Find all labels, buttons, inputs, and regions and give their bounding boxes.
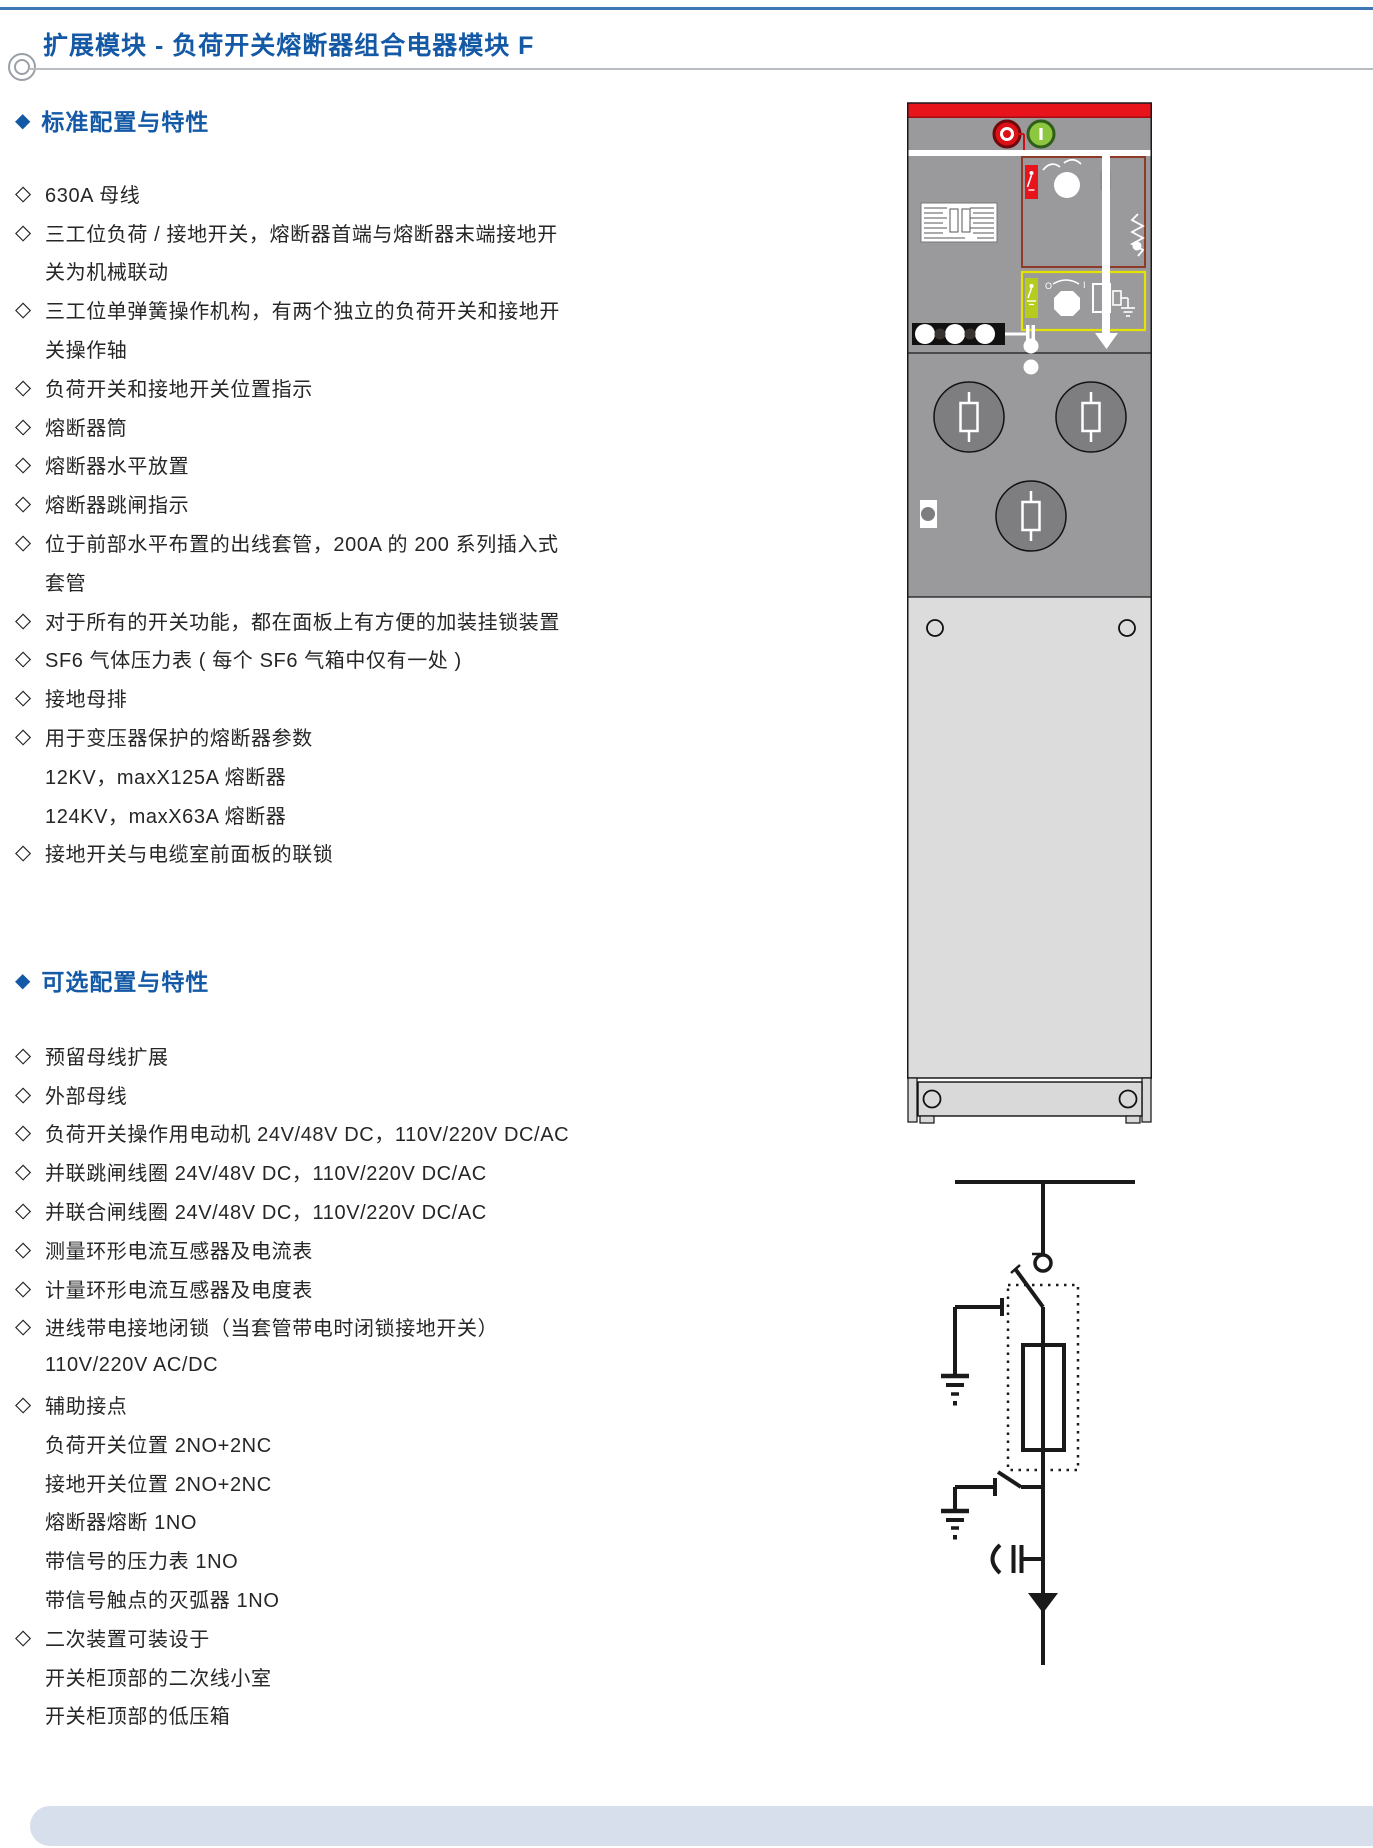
item-diamond-icon: ◇ — [15, 1314, 45, 1339]
item-diamond-icon: ◇ — [15, 1043, 45, 1068]
cabinet-base — [908, 1078, 1151, 1123]
list-item-line: ◇负荷开关操作用电动机 24V/48V DC，110V/220V DC/AC — [15, 1114, 715, 1153]
item-diamond-icon: ◇ — [15, 452, 45, 477]
list-item-text: 熔断器跳闸指示 — [45, 489, 189, 518]
list-item-line: ◇并联跳闸线圈 24V/48V DC，110V/220V DC/AC — [15, 1152, 715, 1191]
item-diamond-icon: ◇ — [15, 685, 45, 710]
list-item-line: ◇预留母线扩展 — [15, 1036, 715, 1075]
list-item-line: ◇位于前部水平布置的出线套管，200A 的 200 系列插入式 — [15, 523, 715, 562]
viewing-port — [920, 500, 937, 528]
list-item-line: ◇接地开关与电缆室前面板的联锁 — [15, 834, 715, 873]
switchgear-cabinet-illustration: O I — [907, 100, 1153, 1130]
list-item-text: 带信号的压力表 1NO — [45, 1545, 238, 1574]
list-item-text: 用于变压器保护的熔断器参数 — [45, 722, 313, 751]
section-diamond-icon: ◆ — [15, 968, 31, 993]
item-diamond-icon: ◇ — [15, 646, 45, 671]
item-diamond-icon: ◇ — [15, 530, 45, 555]
section-heading-optional: ◆ 可选配置与特性 — [15, 963, 209, 997]
load-switch-blade — [1016, 1270, 1043, 1307]
list-item-text: 630A 母线 — [45, 179, 140, 208]
list-item-text: 关操作轴 — [45, 334, 127, 363]
item-diamond-icon: ◇ — [15, 724, 45, 749]
page-top-accent-line — [0, 7, 1373, 10]
list-item-text: 接地开关位置 2NO+2NC — [45, 1468, 272, 1497]
off-push-button — [994, 121, 1020, 147]
list-item-line: ◇熔断器筒 — [15, 407, 715, 446]
list-item-text: 外部母线 — [45, 1080, 127, 1109]
outgoing-feeder-arrow — [1028, 1593, 1058, 1613]
bushing-strip — [912, 323, 1005, 345]
list-item-line: ◇对于所有的开关功能，都在面板上有方便的加装挂锁装置 — [15, 601, 715, 640]
selector-open-label: O — [1045, 281, 1052, 291]
standard-feature-list: ◇630A 母线◇三工位负荷 / 接地开关，熔断器首端与熔断器末端接地开关为机械… — [15, 174, 715, 872]
isolating-contact-symbol — [1035, 1255, 1051, 1271]
item-diamond-icon: ◇ — [15, 375, 45, 400]
list-item-line: ◇用于变压器保护的熔断器参数 — [15, 717, 715, 756]
list-item-line: ◇测量环形电流互感器及电流表 — [15, 1230, 715, 1269]
section-heading-standard: ◆ 标准配置与特性 — [15, 103, 209, 137]
list-item-text: 熔断器筒 — [45, 412, 127, 441]
operating-shaft-knob — [1054, 172, 1080, 198]
list-item-text: 三工位负荷 / 接地开关，熔断器首端与熔断器末端接地开 — [45, 218, 558, 247]
list-item-line: 12KV，maxX125A 熔断器 — [15, 756, 715, 795]
ring-ornament-icon — [8, 53, 36, 81]
item-diamond-icon: ◇ — [15, 1120, 45, 1145]
list-item-line: ◇辅助接点 — [15, 1385, 715, 1424]
list-item-text: 辅助接点 — [45, 1390, 127, 1419]
list-item-text: 位于前部水平布置的出线套管，200A 的 200 系列插入式 — [45, 528, 559, 557]
switch-position-indicator-red — [1025, 165, 1038, 199]
page-title: 扩展模块 - 负荷开关熔断器组合电器模块 F — [43, 26, 534, 62]
list-item-line: 套管 — [15, 562, 715, 601]
section-heading-label: 可选配置与特性 — [41, 963, 209, 997]
list-item-text: 开关柜顶部的低压箱 — [45, 1700, 230, 1729]
page-footer-band — [30, 1806, 1373, 1846]
mimic-diagram-label — [921, 203, 997, 242]
list-item-line: 关为机械联动 — [15, 252, 715, 291]
list-item-line: 124KV，maxX63A 熔断器 — [15, 795, 715, 834]
list-item-text: 熔断器熔断 1NO — [45, 1506, 197, 1535]
list-item-line: 开关柜顶部的低压箱 — [15, 1696, 715, 1735]
list-item-line: ◇熔断器水平放置 — [15, 446, 715, 485]
list-item-text: 负荷开关和接地开关位置指示 — [45, 373, 313, 402]
cabinet-red-header — [907, 103, 1152, 118]
list-item-line: 带信号触点的灭弧器 1NO — [15, 1579, 715, 1618]
list-item-text: 并联跳闸线圈 24V/48V DC，110V/220V DC/AC — [45, 1157, 487, 1186]
list-item-line: ◇熔断器跳闸指示 — [15, 484, 715, 523]
list-item-line: ◇三工位负荷 / 接地开关，熔断器首端与熔断器末端接地开 — [15, 213, 715, 252]
list-item-line: ◇SF6 气体压力表 ( 每个 SF6 气箱中仅有一处 ) — [15, 640, 715, 679]
list-item-text: 进线带电接地闭锁（当套管带电时闭锁接地开关） — [45, 1312, 498, 1341]
list-item-text: 接地开关与电缆室前面板的联锁 — [45, 838, 333, 867]
item-diamond-icon: ◇ — [15, 608, 45, 633]
list-item-line: 110V/220V AC/DC — [15, 1346, 715, 1385]
cable-compartment-panel — [907, 597, 1152, 1078]
list-item-line: ◇接地母排 — [15, 678, 715, 717]
list-item-text: 负荷开关操作用电动机 24V/48V DC，110V/220V DC/AC — [45, 1118, 569, 1147]
list-item-text: 带信号触点的灭弧器 1NO — [45, 1584, 279, 1613]
selector-closed-label: I — [1083, 280, 1086, 290]
fuse-cover — [1056, 382, 1126, 452]
list-item-text: 预留母线扩展 — [45, 1041, 169, 1070]
earthing-shaft-knob — [1054, 291, 1080, 316]
list-item-line: 负荷开关位置 2NO+2NC — [15, 1424, 715, 1463]
item-diamond-icon: ◇ — [15, 181, 45, 206]
voltage-indicator-symbol — [993, 1545, 1044, 1573]
item-diamond-icon: ◇ — [15, 1237, 45, 1262]
lower-earthing-switch — [941, 1472, 1043, 1540]
list-item-text: 熔断器水平放置 — [45, 450, 189, 479]
list-item-line: ◇630A 母线 — [15, 174, 715, 213]
list-item-line: ◇外部母线 — [15, 1075, 715, 1114]
catalog-page: 扩展模块 - 负荷开关熔断器组合电器模块 F ◆ 标准配置与特性 ◇630A 母… — [0, 0, 1373, 1848]
upper-earthing-switch — [941, 1298, 1002, 1406]
list-item-line: 关操作轴 — [15, 329, 715, 368]
item-diamond-icon: ◇ — [15, 1082, 45, 1107]
list-item-line: 熔断器熔断 1NO — [15, 1502, 715, 1541]
item-diamond-icon: ◇ — [15, 297, 45, 322]
list-item-text: 计量环形电流互感器及电度表 — [45, 1274, 313, 1303]
list-item-text: 关为机械联动 — [45, 256, 169, 285]
section-heading-label: 标准配置与特性 — [41, 103, 209, 137]
item-diamond-icon: ◇ — [15, 414, 45, 439]
item-diamond-icon: ◇ — [15, 1159, 45, 1184]
list-item-text: 对于所有的开关功能，都在面板上有方便的加装挂锁装置 — [45, 606, 560, 635]
list-item-line: 开关柜顶部的二次线小室 — [15, 1657, 715, 1696]
item-diamond-icon: ◇ — [15, 1276, 45, 1301]
single-line-circuit-diagram — [940, 1160, 1150, 1680]
item-diamond-icon: ◇ — [15, 1625, 45, 1650]
list-item-text: 负荷开关位置 2NO+2NC — [45, 1429, 272, 1458]
on-push-button — [1028, 121, 1054, 147]
section-diamond-icon: ◆ — [15, 108, 31, 133]
list-item-line: ◇三工位单弹簧操作机构，有两个独立的负荷开关和接地开 — [15, 290, 715, 329]
list-item-line: 带信号的压力表 1NO — [15, 1540, 715, 1579]
item-diamond-icon: ◇ — [15, 1198, 45, 1223]
list-item-text: 套管 — [45, 567, 86, 596]
fuse-cover — [934, 382, 1004, 452]
title-divider — [30, 68, 1373, 70]
list-item-text: 并联合闸线圈 24V/48V DC，110V/220V DC/AC — [45, 1196, 487, 1225]
list-item-text: 二次装置可装设于 — [45, 1623, 210, 1652]
optional-feature-list: ◇预留母线扩展◇外部母线◇负荷开关操作用电动机 24V/48V DC，110V/… — [15, 1036, 715, 1734]
item-diamond-icon: ◇ — [15, 840, 45, 865]
list-item-text: 110V/220V AC/DC — [45, 1354, 218, 1377]
fuse-compartment-panel — [907, 353, 1152, 597]
list-item-line: ◇并联合闸线圈 24V/48V DC，110V/220V DC/AC — [15, 1191, 715, 1230]
list-item-line: ◇计量环形电流互感器及电度表 — [15, 1269, 715, 1308]
list-item-text: 开关柜顶部的二次线小室 — [45, 1662, 272, 1691]
list-item-text: 三工位单弹簧操作机构，有两个独立的负荷开关和接地开 — [45, 295, 560, 324]
list-item-line: ◇进线带电接地闭锁（当套管带电时闭锁接地开关） — [15, 1308, 715, 1347]
fuse-cover — [996, 481, 1066, 551]
item-diamond-icon: ◇ — [15, 1392, 45, 1417]
list-item-text: 接地母排 — [45, 683, 127, 712]
list-item-text: 12KV，maxX125A 熔断器 — [45, 761, 286, 790]
list-item-text: 124KV，maxX63A 熔断器 — [45, 800, 286, 829]
list-item-line: ◇负荷开关和接地开关位置指示 — [15, 368, 715, 407]
list-item-text: 测量环形电流互感器及电流表 — [45, 1235, 313, 1264]
list-item-text: SF6 气体压力表 ( 每个 SF6 气箱中仅有一处 ) — [45, 644, 462, 673]
list-item-line: 接地开关位置 2NO+2NC — [15, 1463, 715, 1502]
item-diamond-icon: ◇ — [15, 220, 45, 245]
item-diamond-icon: ◇ — [15, 491, 45, 516]
list-item-line: ◇二次装置可装设于 — [15, 1618, 715, 1657]
